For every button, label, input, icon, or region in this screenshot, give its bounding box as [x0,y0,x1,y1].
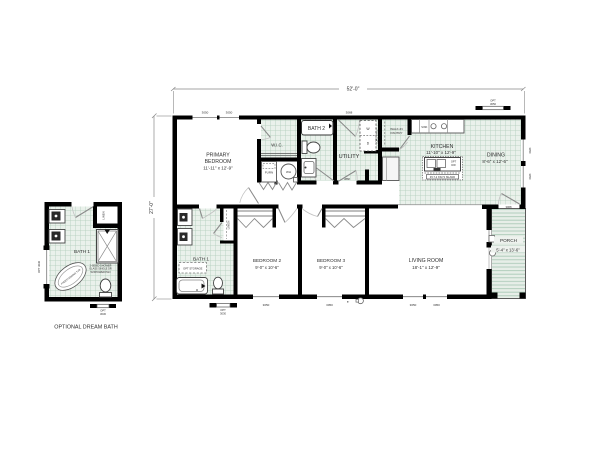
svg-text:OPT: OPT [451,160,457,164]
svg-text:3050: 3050 [410,303,417,307]
svg-text:DW: DW [451,163,456,167]
svg-text:8'-6" x 12'-6": 8'-6" x 12'-6" [482,159,508,164]
svg-text:18'-1" x 12'-9": 18'-1" x 12'-9" [412,265,440,270]
svg-text:3050: 3050 [326,303,333,307]
svg-text:9'-0" x 10'-6": 9'-0" x 10'-6" [255,265,279,270]
svg-text:UTILITY: UTILITY [339,154,360,160]
svg-text:11'-10" x 12'-9": 11'-10" x 12'-9" [426,150,456,155]
svg-text:3050: 3050 [433,303,440,307]
svg-text:LIVING ROOM: LIVING ROOM [409,258,444,264]
svg-text:PRIMARY: PRIMARY [206,153,230,159]
svg-text:LINEN: LINEN [227,221,231,230]
svg-text:27'-0": 27'-0" [149,201,155,214]
svg-text:3030: 3030 [100,312,106,316]
svg-text:OPTIONAL DREAM BATH: OPTIONAL DREAM BATH [54,325,118,331]
svg-text:5'-4" x 13'-6": 5'-4" x 13'-6" [496,248,520,253]
svg-text:DINING: DINING [487,153,505,159]
svg-text:3050: 3050 [490,102,496,106]
svg-text:FURN: FURN [265,171,273,175]
svg-text:3050: 3050 [263,303,270,307]
svg-text:5": 5" [347,300,349,304]
svg-text:W.I.C.: W.I.C. [271,143,282,148]
svg-text:W/SHOWER PAN: W/SHOWER PAN [91,271,111,274]
svg-text:PANTRY: PANTRY [391,131,403,135]
svg-text:2868: 2868 [344,178,350,181]
svg-text:3068: 3068 [346,111,353,115]
svg-text:OPT: OPT [100,309,106,313]
svg-text:3050: 3050 [528,147,532,154]
svg-text:11'-11" x 12'-9": 11'-11" x 12'-9" [203,166,233,171]
svg-text:3050: 3050 [202,111,209,115]
svg-text:KITCHEN: KITCHEN [431,144,454,150]
svg-text:BEDROOM 3: BEDROOM 3 [317,258,346,263]
svg-text:3050: 3050 [226,111,233,115]
svg-text:BATH 1: BATH 1 [193,257,209,262]
svg-text:45.7-2 KS/72 ISLAND: 45.7-2 KS/72 ISLAND [430,175,455,179]
svg-text:3068: 3068 [506,205,512,209]
svg-text:BATH 2: BATH 2 [308,126,325,132]
svg-text:PORCH: PORCH [500,238,517,243]
svg-text:52'-0": 52'-0" [347,87,360,93]
svg-text:BATH 1: BATH 1 [74,249,90,254]
svg-text:9'-0" x 10'-6": 9'-0" x 10'-6" [319,265,343,270]
svg-text:OPT 3030: OPT 3030 [37,260,41,273]
svg-text:LOAD SHELF: LOAD SHELF [375,128,378,144]
svg-text:3030: 3030 [220,312,226,316]
svg-text:LINEN: LINEN [102,211,106,219]
svg-text:OPT STORAGE: OPT STORAGE [183,267,203,271]
svg-text:BEDROOM: BEDROOM [205,159,232,165]
svg-text:OPT: OPT [220,308,226,312]
svg-text:3050: 3050 [528,173,532,180]
svg-text:OPT: OPT [490,99,496,103]
svg-text:BEDROOM 2: BEDROOM 2 [253,258,282,263]
svg-text:WH: WH [286,170,291,174]
svg-text:SINK: SINK [421,125,427,129]
